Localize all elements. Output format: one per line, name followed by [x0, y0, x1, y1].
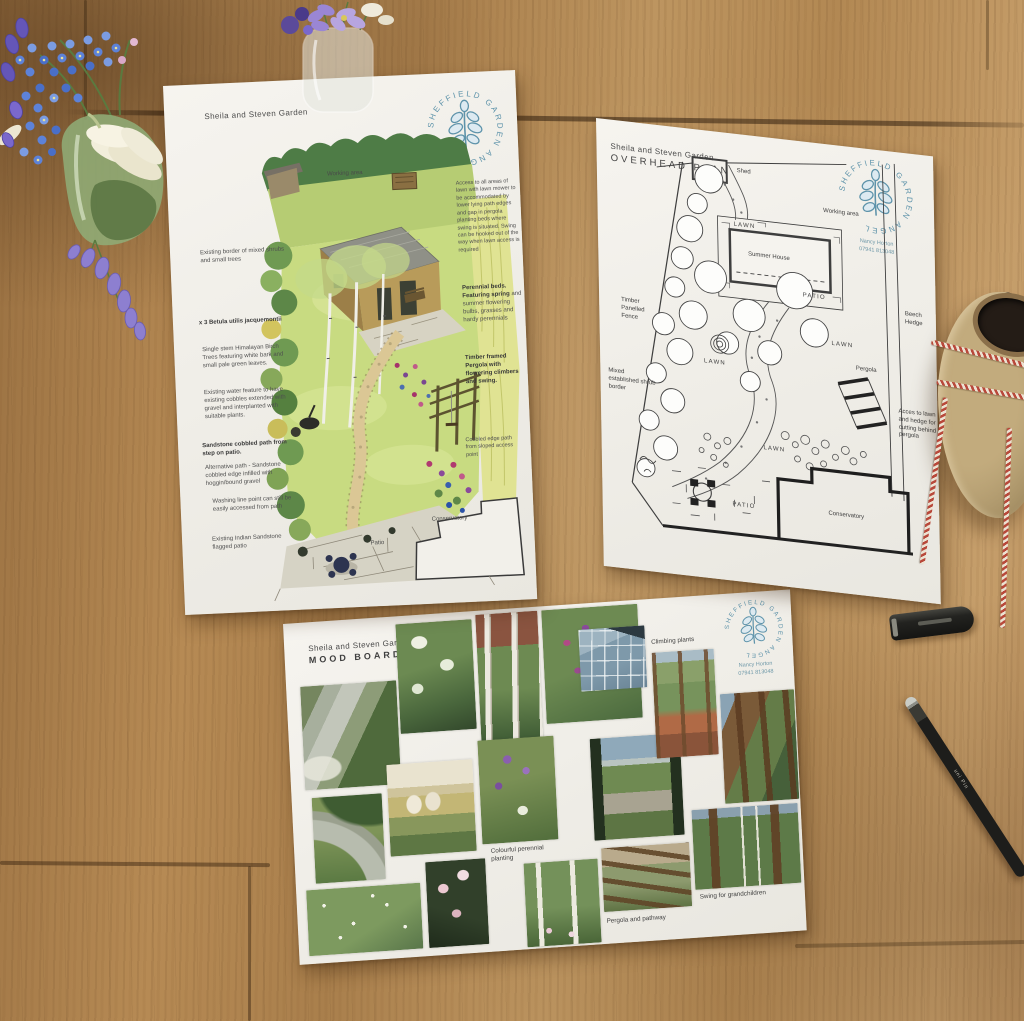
- label-patio: Patio: [370, 540, 384, 547]
- moodboard-photo-tile: [306, 883, 423, 957]
- label-access-note: Acces to lawn and hedge for cutting behi…: [898, 408, 937, 444]
- note-lead: Perennial beds. Featuring spring: [462, 283, 510, 299]
- sheffield-garden-angel-logo: [721, 596, 786, 662]
- plank-seam: [0, 861, 270, 867]
- pen-cap: [889, 605, 976, 641]
- overhead-plan-drawing: [596, 118, 941, 604]
- designer-contact: Nancy Horton 07941 813048: [722, 660, 789, 680]
- note-alternative-path: Alternative path - Sandstone cobbled edg…: [205, 460, 294, 488]
- moodboard-photo-tile: [524, 859, 602, 948]
- moodboard-photo-tile: [312, 793, 386, 883]
- pen-body: uni Pin: [903, 695, 1024, 879]
- caption-climbing-plants: Climbing plants: [651, 635, 711, 647]
- moodboard-photo-tile: [477, 736, 558, 845]
- moodboard-photo-tile: [425, 858, 489, 948]
- garden-illustration-sheet: Sheila and Steven Garden: [163, 70, 537, 615]
- note-lead: Timber framed Pergola with flowering cli…: [465, 353, 519, 385]
- note-text: Cobbled edge path from sloped access poi…: [465, 435, 513, 458]
- note-perennial-beds: Perennial beds. Featuring spring and sum…: [462, 282, 524, 325]
- ceramic-pot: [938, 292, 1024, 518]
- note-cobbled-edge: Cobbled edge path from sloped access poi…: [465, 435, 524, 460]
- flower-bouquet-in-vase: [0, 0, 190, 345]
- moodboard-photo-tile: [386, 759, 476, 857]
- note-text: Access to all areas of lawn with lawn mo…: [456, 178, 520, 253]
- moodboard-photo-tile: [601, 842, 692, 912]
- label-timber-fence: Timber Panelled Fence: [621, 297, 655, 324]
- moodboard-photo-tile: [395, 619, 476, 734]
- moodboard-photo-tile: [475, 611, 543, 743]
- plank-seam: [248, 866, 251, 1021]
- moodboard-photo-tile: [578, 625, 647, 691]
- hanging-bluebells: [65, 243, 146, 341]
- small-flower-jar: [268, 0, 423, 115]
- plank-seam: [795, 940, 1024, 948]
- plank-seam: [986, 0, 989, 70]
- photo-of-garden-design-documents: SHEFFIELD GARDEN ANGEL Sheila and Steven…: [0, 0, 1024, 1021]
- pen-cap-clip: [918, 618, 952, 626]
- garden-watercolour-drawing: [163, 70, 537, 615]
- mood-board-sheet: Sheila and Steven Garden MOOD BOARD Nanc…: [283, 589, 807, 964]
- note-lawn-access: Access to all areas of lawn with lawn mo…: [456, 178, 521, 255]
- caption-swing: Swing for grandchildren: [700, 887, 802, 902]
- moodboard-photo-tile: [652, 649, 719, 759]
- label-beech-hedge: Beech Hedge: [905, 311, 935, 330]
- pen-brand-label: uni Pin: [952, 768, 969, 790]
- moodboard-photo-tile: [691, 803, 801, 890]
- note-water-feature: Existing water feature to have existing …: [204, 385, 297, 421]
- note-single-stem: Single stem Himalayan Birch Trees featur…: [202, 342, 295, 370]
- note-timber-pergola: Timber framed Pergola with flowering cli…: [465, 352, 526, 387]
- caption-colourful-perennial: Colourful perennial planting: [491, 843, 556, 863]
- moodboard-photo-tile: [720, 689, 799, 804]
- pen-cap-ring: [891, 618, 898, 636]
- overhead-plan-sheet: Sheila and Steven Garden OVERHEAD PLAN N…: [596, 118, 941, 604]
- caption-pergola-pathway: Pergola and pathway: [606, 912, 696, 926]
